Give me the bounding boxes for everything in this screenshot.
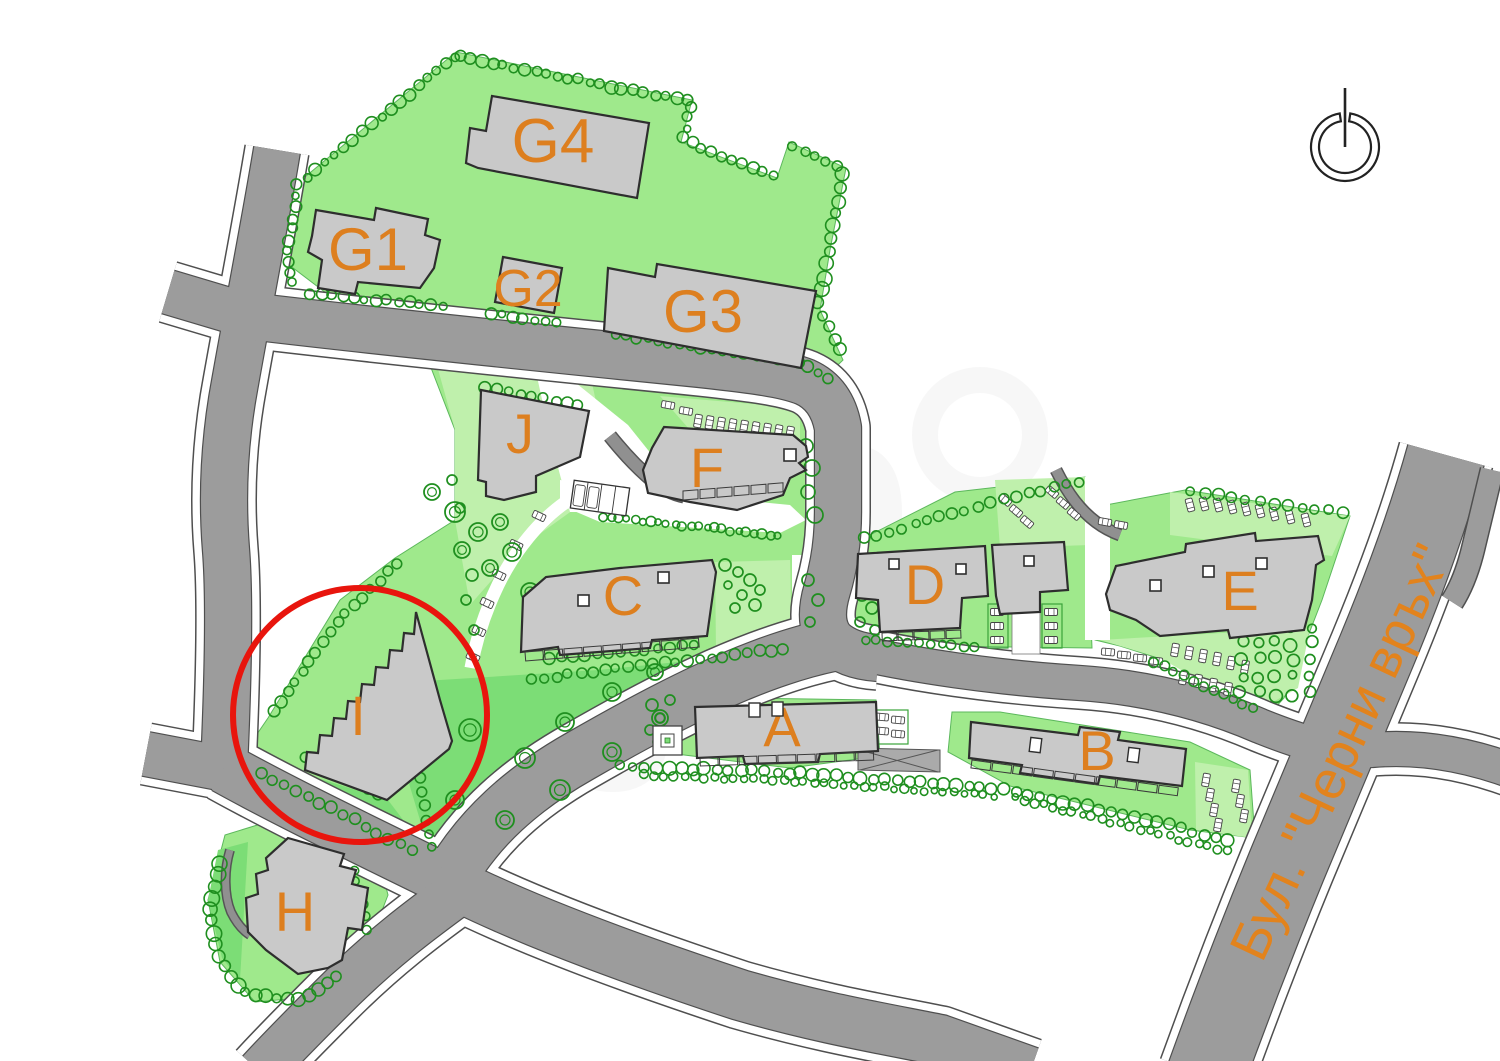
svg-text:H: H bbox=[275, 880, 315, 943]
svg-text:E: E bbox=[1221, 559, 1258, 622]
svg-text:B: B bbox=[1078, 719, 1115, 782]
svg-text:C: C bbox=[603, 564, 643, 627]
svg-text:G1: G1 bbox=[328, 216, 408, 283]
svg-text:J: J bbox=[506, 402, 534, 465]
svg-text:I: I bbox=[350, 684, 366, 747]
svg-text:G4: G4 bbox=[512, 107, 595, 176]
svg-text:D: D bbox=[905, 553, 945, 616]
svg-text:G3: G3 bbox=[663, 278, 743, 345]
svg-text:G2: G2 bbox=[493, 260, 562, 318]
